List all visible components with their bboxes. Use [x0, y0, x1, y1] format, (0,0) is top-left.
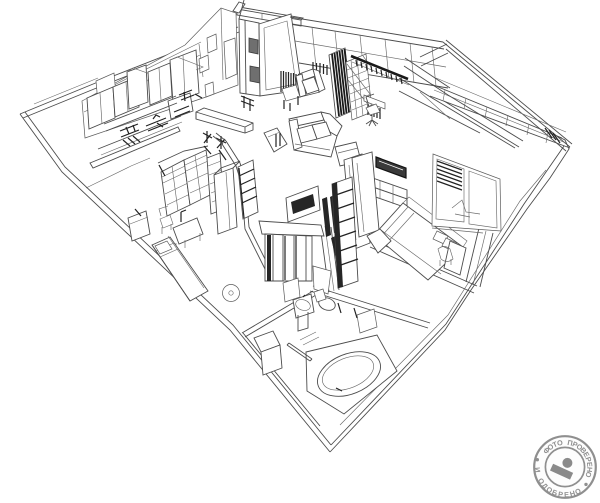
svg-text:И: И [533, 467, 542, 473]
